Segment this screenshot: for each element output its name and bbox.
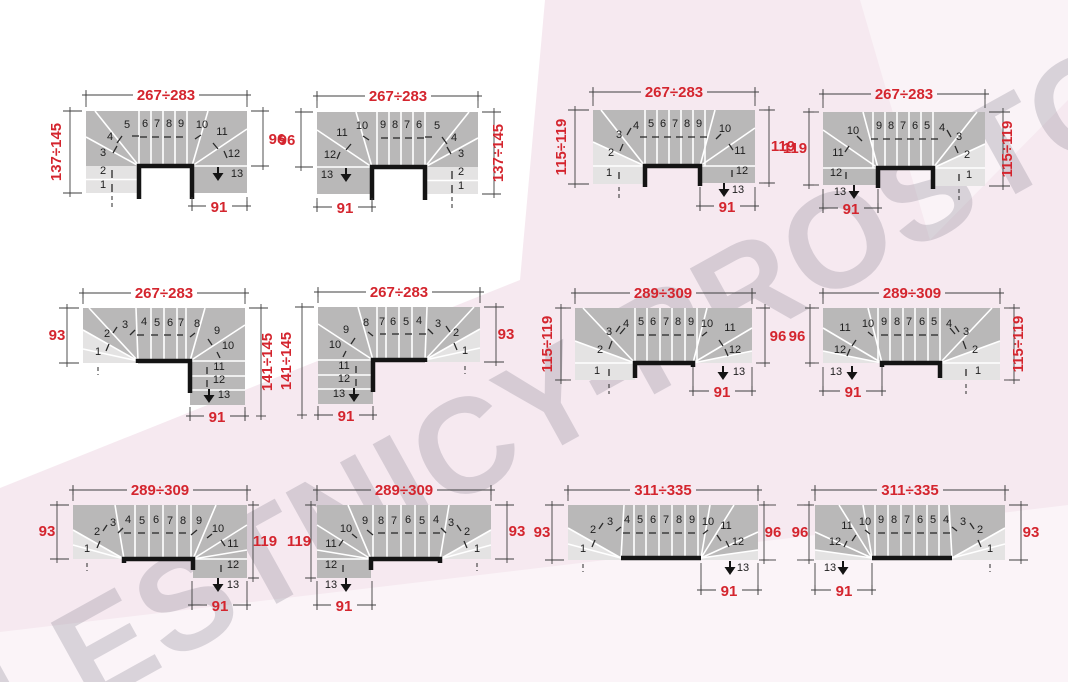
step-number: 6 <box>912 120 918 132</box>
dimension-label: 91 <box>845 384 862 401</box>
dimension-label: 137÷145 <box>490 124 507 182</box>
descend-arrow-icon <box>718 366 729 380</box>
dimension-label: 91 <box>721 583 738 600</box>
step-number: 8 <box>166 118 172 130</box>
descend-arrow-icon <box>847 366 858 380</box>
landing-edge <box>139 166 192 199</box>
step-number: 5 <box>139 515 145 527</box>
step-number: 11 <box>213 361 224 373</box>
step-number: 11 <box>839 322 850 334</box>
step-number: 8 <box>194 318 200 330</box>
step-number: 7 <box>379 316 385 328</box>
dimension-label: 91 <box>836 583 853 600</box>
step-number: 8 <box>180 515 186 527</box>
dimension-label: 289÷309 <box>375 482 433 499</box>
step-number: 8 <box>392 119 398 131</box>
descend-arrow-icon <box>213 578 224 592</box>
step-number: 6 <box>142 118 148 130</box>
dimension-label: 93 <box>509 523 526 540</box>
stair-plan-9-drawing: 289÷309919311912345678910111213 <box>37 480 285 630</box>
step-number: 10 <box>212 523 224 535</box>
step-number: 1 <box>987 543 993 555</box>
dimension-label: 311÷335 <box>881 482 938 499</box>
stair-plan-5: 267÷2839193141÷14512345678910111213 <box>47 283 295 433</box>
step-number: 6 <box>405 514 411 526</box>
step-number: 2 <box>590 524 596 536</box>
descend-arrow-icon <box>719 183 730 197</box>
descend-arrow-icon <box>725 561 736 575</box>
dimension-label: 91 <box>336 598 353 615</box>
step-number: 8 <box>894 316 900 328</box>
dimension-label: 141÷145 <box>278 332 295 390</box>
step-number: 5 <box>648 118 654 130</box>
step-number: 10 <box>356 120 368 132</box>
step-number: 6 <box>650 514 656 526</box>
dimension-label: 137÷145 <box>48 123 65 181</box>
step-number: 11 <box>832 147 843 159</box>
dimension-label: 91 <box>212 598 229 615</box>
step-number: 9 <box>362 515 368 527</box>
stair-plan-6: 267÷2839193141÷14512345678910111213 <box>268 282 516 432</box>
step-number: 7 <box>167 515 173 527</box>
step-number: 12 <box>829 536 841 548</box>
step-number: 13 <box>732 184 744 196</box>
step-number: 2 <box>977 524 983 536</box>
dimension-label: 91 <box>714 384 731 401</box>
step-number: 3 <box>956 131 962 143</box>
step-number: 3 <box>607 516 613 528</box>
dimension-label: 119 <box>287 533 311 550</box>
step-number: 9 <box>214 325 220 337</box>
step-number: 3 <box>100 147 106 159</box>
step-number: 10 <box>719 123 731 135</box>
step-number: 4 <box>946 318 952 330</box>
step-number: 5 <box>931 316 937 328</box>
step-number: 12 <box>324 149 336 161</box>
dimension-label: 96 <box>792 524 809 541</box>
dimension-label: 91 <box>211 199 228 216</box>
stair-plan-1-drawing: 267÷28391137÷1459612345678910111213 <box>50 85 298 235</box>
step-number: 9 <box>178 118 184 130</box>
dimension-label: 96 <box>765 524 782 541</box>
step-number: 12 <box>228 148 240 160</box>
step-number: 2 <box>597 344 603 356</box>
dimension-label: 96 <box>279 132 296 149</box>
step-number: 11 <box>216 126 227 138</box>
step-number: 5 <box>434 120 440 132</box>
step-number: 13 <box>737 562 749 574</box>
dimension-label: 93 <box>534 524 551 541</box>
stair-plan-2: 267÷28391137÷1459612345678910111213 <box>266 86 514 236</box>
step-number: 13 <box>227 579 239 591</box>
step-number: 12 <box>732 536 744 548</box>
step-number: 13 <box>333 388 345 400</box>
step-number: 10 <box>222 340 234 352</box>
landing-edge <box>882 363 940 378</box>
step-number: 8 <box>888 120 894 132</box>
step-number: 6 <box>390 316 396 328</box>
step-number: 2 <box>964 149 970 161</box>
step-number: 11 <box>724 322 735 334</box>
step-number: 8 <box>891 514 897 526</box>
dimension-label: 289÷309 <box>634 285 692 302</box>
step-number: 12 <box>834 344 846 356</box>
step-number: 8 <box>684 118 690 130</box>
step-number: 9 <box>689 514 695 526</box>
dimension-label: 93 <box>498 326 515 343</box>
step-number: 3 <box>963 326 969 338</box>
step-number: 10 <box>847 125 859 137</box>
dimension-label: 96 <box>789 328 806 345</box>
step-number: 7 <box>900 120 906 132</box>
step-number: 6 <box>650 316 656 328</box>
step-number: 13 <box>321 169 333 181</box>
step-number: 6 <box>416 119 422 131</box>
step-number: 7 <box>904 514 910 526</box>
stair-plan-11-drawing: 311÷33591939612345678910111213 <box>532 480 780 630</box>
step-number: 3 <box>435 318 441 330</box>
step-number: 9 <box>343 324 349 336</box>
landing-edge <box>878 168 933 189</box>
step-number: 12 <box>213 374 225 386</box>
step-number: 1 <box>95 346 101 358</box>
step-number: 7 <box>154 118 160 130</box>
stair-plan-12: 311÷33591939612345678910111213 <box>793 480 1041 630</box>
step-number: 1 <box>580 543 586 555</box>
step-number: 2 <box>100 165 106 177</box>
landing-edge <box>635 363 693 378</box>
step-number: 2 <box>608 147 614 159</box>
step-number: 12 <box>729 344 741 356</box>
dimension-label: 119 <box>783 140 807 157</box>
step-number: 2 <box>453 327 459 339</box>
step-number: 2 <box>458 166 464 178</box>
step-number: 10 <box>340 523 352 535</box>
step-number: 12 <box>227 559 239 571</box>
landing-edge <box>372 167 425 200</box>
dimension-label: 267÷283 <box>369 88 427 105</box>
step-number: 7 <box>906 316 912 328</box>
dimension-label: 91 <box>719 199 736 216</box>
step-number: 5 <box>419 515 425 527</box>
step-number: 4 <box>623 318 629 330</box>
dimension-label: 93 <box>1023 524 1040 541</box>
step-number: 10 <box>862 318 874 330</box>
stair-plan-10-drawing: 289÷309919311912345678910111213 <box>279 480 527 630</box>
step-number: 2 <box>464 526 470 538</box>
dimension-label: 267÷283 <box>875 86 933 103</box>
step-number: 9 <box>380 119 386 131</box>
stair-plan-10: 289÷309919311912345678910111213 <box>279 480 527 630</box>
stair-layouts-sheet: LESTNICY-PROSTO.RU 267÷28391137÷14596123… <box>0 0 1068 682</box>
stair-plan-7: 289÷30991115÷1199612345678910111213 <box>547 283 795 433</box>
stair-plan-6-drawing: 267÷2839193141÷14512345678910111213 <box>268 282 516 432</box>
dimension-label: 91 <box>209 409 226 426</box>
step-number: 4 <box>451 132 457 144</box>
dimension-label: 115÷119 <box>553 119 570 176</box>
step-number: 3 <box>122 319 128 331</box>
landing-edge <box>645 166 700 187</box>
descend-arrow-icon <box>838 561 849 575</box>
step-number: 5 <box>637 514 643 526</box>
dimension-label: 289÷309 <box>883 285 941 302</box>
descend-arrow-icon <box>341 578 352 592</box>
step-number: 10 <box>859 516 871 528</box>
stair-plan-5-drawing: 267÷2839193141÷14512345678910111213 <box>47 283 295 433</box>
descend-arrow-icon <box>849 185 860 199</box>
step-number: 1 <box>84 543 90 555</box>
dimension-label: 115÷119 <box>999 121 1016 178</box>
step-number: 7 <box>672 118 678 130</box>
step-number: 13 <box>231 168 243 180</box>
step-number: 10 <box>196 119 208 131</box>
step-number: 4 <box>141 316 147 328</box>
dimension-label: 267÷283 <box>645 84 703 101</box>
step-number: 6 <box>660 118 666 130</box>
dimension-label: 91 <box>843 201 860 218</box>
step-number: 1 <box>100 179 106 191</box>
landing-edge <box>371 559 440 570</box>
dimension-label: 93 <box>39 523 56 540</box>
step-number: 11 <box>720 520 731 532</box>
step-number: 7 <box>663 514 669 526</box>
step-number: 1 <box>975 365 981 377</box>
step-number: 7 <box>391 515 397 527</box>
landing-edge <box>138 361 190 393</box>
step-number: 5 <box>124 119 130 131</box>
stair-plan-8: 289÷30991115÷1199612345678910111213 <box>780 283 1028 433</box>
dimension-label: 93 <box>49 327 66 344</box>
step-number: 5 <box>638 316 644 328</box>
stair-plan-9: 289÷309919311912345678910111213 <box>37 480 285 630</box>
step-number: 11 <box>325 538 336 550</box>
step-number: 7 <box>663 316 669 328</box>
dimension-label: 289÷309 <box>131 482 189 499</box>
step-number: 2 <box>972 344 978 356</box>
step-number: 3 <box>458 148 464 160</box>
dimension-label: 115÷119 <box>539 316 556 373</box>
step-number: 12 <box>325 559 337 571</box>
step-number: 6 <box>167 317 173 329</box>
stair-plan-2-drawing: 267÷28391137÷1459612345678910111213 <box>266 86 514 236</box>
step-number: 10 <box>701 318 713 330</box>
step-number: 5 <box>154 317 160 329</box>
landing-edge <box>373 360 425 392</box>
step-number: 9 <box>881 316 887 328</box>
step-number: 13 <box>218 389 230 401</box>
step-number: 9 <box>696 118 702 130</box>
step-number: 5 <box>403 316 409 328</box>
step-number: 4 <box>433 514 439 526</box>
step-number: 1 <box>606 167 612 179</box>
step-number: 3 <box>448 517 454 529</box>
step-number: 7 <box>178 317 184 329</box>
stair-plan-4: 267÷28391115÷11911912345678910111213 <box>773 82 1021 232</box>
dimension-label: 267÷283 <box>137 87 195 104</box>
step-number: 13 <box>824 562 836 574</box>
step-number: 11 <box>734 145 745 157</box>
step-number: 1 <box>966 169 972 181</box>
dimension-label: 119 <box>253 533 277 550</box>
step-number: 4 <box>624 514 630 526</box>
step-number: 4 <box>125 514 131 526</box>
dimension-label: 91 <box>337 200 354 217</box>
stair-plan-4-drawing: 267÷28391115÷11911912345678910111213 <box>773 82 1021 232</box>
stair-plan-12-drawing: 311÷33591939612345678910111213 <box>793 480 1041 630</box>
step-number: 13 <box>834 186 846 198</box>
step-number: 5 <box>924 120 930 132</box>
step-number: 8 <box>676 514 682 526</box>
step-number: 11 <box>336 127 347 139</box>
step-number: 9 <box>196 515 202 527</box>
step-number: 4 <box>633 120 639 132</box>
step-number: 8 <box>378 515 384 527</box>
step-number: 10 <box>702 516 714 528</box>
step-number: 12 <box>736 165 748 177</box>
step-number: 6 <box>153 514 159 526</box>
step-number: 13 <box>325 579 337 591</box>
stair-plan-3: 267÷28391115÷11911912345678910111213 <box>557 80 805 230</box>
step-number: 6 <box>919 316 925 328</box>
step-number: 13 <box>830 366 842 378</box>
step-number: 9 <box>688 316 694 328</box>
step-number: 2 <box>94 526 100 538</box>
step-number: 4 <box>416 315 422 327</box>
step-number: 1 <box>458 180 464 192</box>
step-number: 6 <box>917 514 923 526</box>
step-number: 4 <box>943 514 949 526</box>
step-number: 11 <box>338 360 349 372</box>
step-number: 3 <box>110 517 116 529</box>
step-number: 4 <box>107 131 113 143</box>
stair-plan-3-drawing: 267÷28391115÷11911912345678910111213 <box>557 80 805 230</box>
step-number: 3 <box>960 516 966 528</box>
step-number: 9 <box>876 120 882 132</box>
step-number: 4 <box>939 122 945 134</box>
dimension-label: 115÷119 <box>1010 316 1027 373</box>
landing-edge <box>124 559 193 570</box>
step-number: 8 <box>675 316 681 328</box>
dimension-label: 311÷335 <box>634 482 691 499</box>
step-number: 8 <box>363 317 369 329</box>
step-number: 3 <box>616 129 622 141</box>
step-number: 1 <box>474 543 480 555</box>
step-number: 2 <box>104 328 110 340</box>
step-number: 12 <box>338 373 350 385</box>
dimension-label: 267÷283 <box>370 284 428 301</box>
step-number: 13 <box>733 366 745 378</box>
step-number: 5 <box>930 514 936 526</box>
step-number: 7 <box>404 119 410 131</box>
step-number: 9 <box>878 514 884 526</box>
dimension-label: 267÷283 <box>135 285 193 302</box>
step-number: 1 <box>594 365 600 377</box>
stair-plan-7-drawing: 289÷30991115÷1199612345678910111213 <box>547 283 795 433</box>
step-number: 12 <box>830 167 842 179</box>
dimension-label: 91 <box>338 408 355 425</box>
stair-plan-8-drawing: 289÷30991115÷1199612345678910111213 <box>780 283 1028 433</box>
stair-plan-11: 311÷33591939612345678910111213 <box>532 480 780 630</box>
stair-plan-1: 267÷28391137÷1459612345678910111213 <box>50 85 298 235</box>
step-number: 3 <box>606 326 612 338</box>
step-number: 10 <box>329 339 341 351</box>
step-number: 11 <box>841 520 852 532</box>
step-number: 1 <box>462 345 468 357</box>
step-number: 11 <box>227 538 238 550</box>
